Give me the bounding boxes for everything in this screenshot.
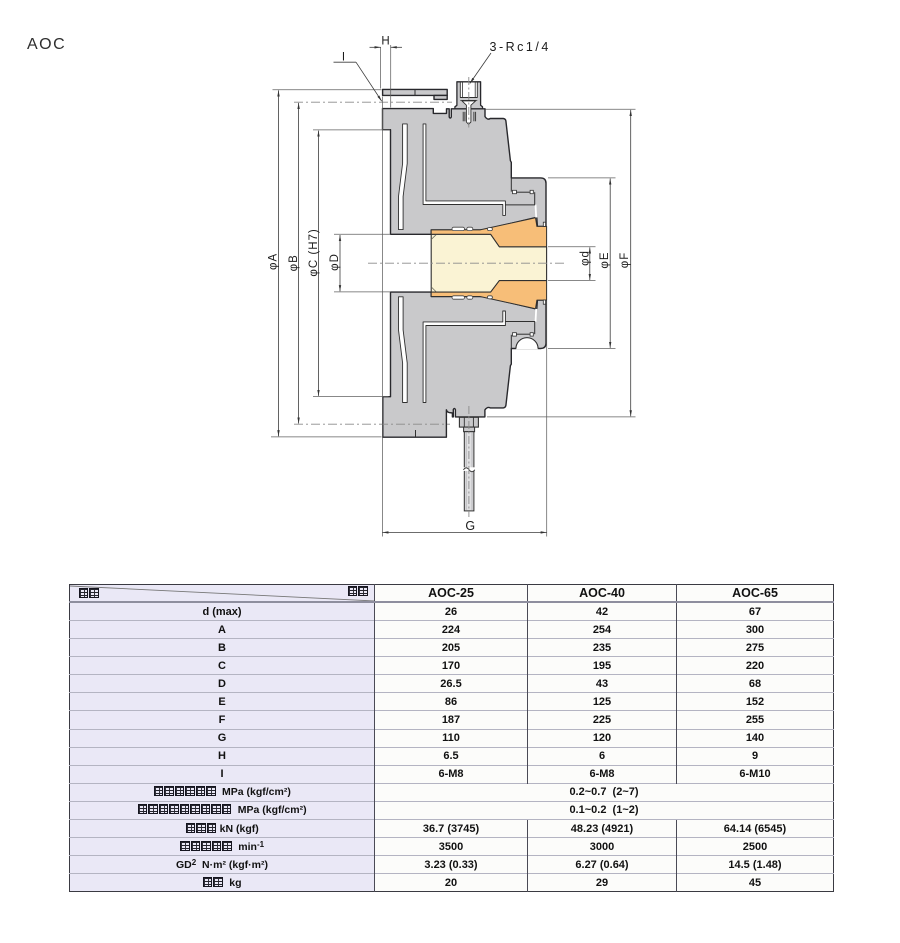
svg-text:I: I [342, 52, 346, 64]
svg-text:G: G [465, 519, 475, 533]
svg-text:φd: φd [580, 250, 592, 266]
svg-text:φB: φB [288, 254, 300, 271]
svg-text:φF: φF [619, 252, 631, 268]
svg-text:AOC: AOC [27, 36, 66, 53]
svg-text:φC (H7): φC (H7) [308, 228, 320, 276]
svg-text:φA: φA [267, 253, 279, 270]
svg-text:φD: φD [329, 253, 341, 271]
svg-text:φE: φE [599, 251, 611, 268]
svg-text:3-Rc1/4: 3-Rc1/4 [490, 40, 551, 54]
svg-text:H: H [381, 36, 390, 48]
